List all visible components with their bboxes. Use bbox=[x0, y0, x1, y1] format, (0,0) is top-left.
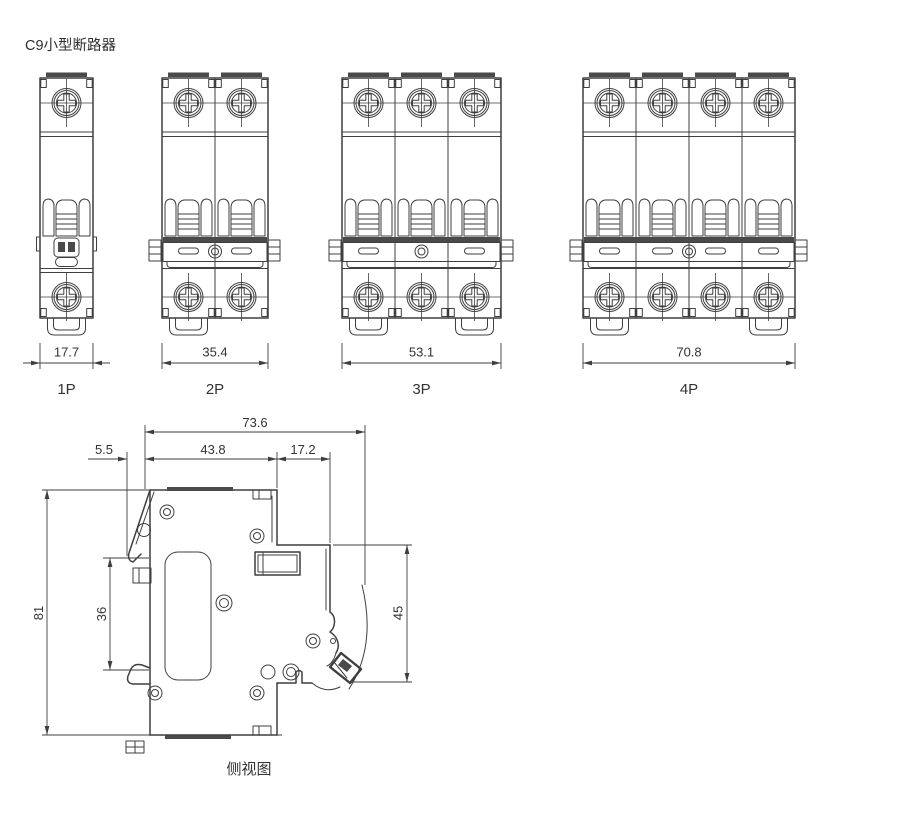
dimension-height: 81 bbox=[31, 490, 282, 735]
view-label-4p: 4P bbox=[680, 381, 698, 398]
dim-width-2p: 35.4 bbox=[202, 345, 227, 360]
dimension-front-depth: 17.2 bbox=[277, 442, 330, 543]
dim-body-depth: 43.8 bbox=[200, 442, 225, 457]
side-view-label: 侧视图 bbox=[226, 761, 271, 778]
side-view: 73.6 5.5 43.8 17.2 81 bbox=[31, 415, 412, 778]
dim-front-depth: 17.2 bbox=[290, 442, 315, 457]
dim-rail-notch-height: 36 bbox=[94, 607, 109, 621]
dimension-body-depth: 43.8 bbox=[145, 442, 277, 488]
dimension-rail-notch-height: 36 bbox=[94, 558, 149, 670]
front-view-2p: 35.4 2P bbox=[149, 73, 280, 399]
technical-drawing-page: C9小型断路器 17.7 1P bbox=[0, 0, 900, 818]
drawing-canvas: C9小型断路器 17.7 1P bbox=[0, 0, 900, 818]
dim-width-3p: 53.1 bbox=[409, 345, 434, 360]
dimension-width-2p: 35.4 bbox=[162, 343, 268, 369]
dimension-width-1p: 17.7 bbox=[23, 343, 110, 369]
dimension-rail-offset: 5.5 bbox=[88, 442, 127, 556]
dim-width-4p: 70.8 bbox=[676, 345, 701, 360]
dim-overall-depth: 73.6 bbox=[242, 415, 267, 430]
view-label-3p: 3P bbox=[412, 381, 430, 398]
dimension-width-4p: 70.8 bbox=[583, 343, 795, 369]
front-view-4p: 70.8 4P bbox=[570, 73, 807, 399]
page-title: C9小型断路器 bbox=[25, 37, 117, 54]
dim-rail-offset: 5.5 bbox=[95, 442, 113, 457]
view-label-1p: 1P bbox=[57, 381, 75, 398]
front-view-1p: 17.7 1P bbox=[23, 73, 110, 399]
dimension-width-3p: 53.1 bbox=[342, 343, 501, 369]
front-view-3p: 53.1 3P bbox=[329, 73, 513, 399]
dim-height: 81 bbox=[31, 606, 46, 620]
dim-front-height: 45 bbox=[391, 606, 406, 620]
view-label-2p: 2P bbox=[206, 381, 224, 398]
dim-width-1p: 17.7 bbox=[54, 345, 79, 360]
